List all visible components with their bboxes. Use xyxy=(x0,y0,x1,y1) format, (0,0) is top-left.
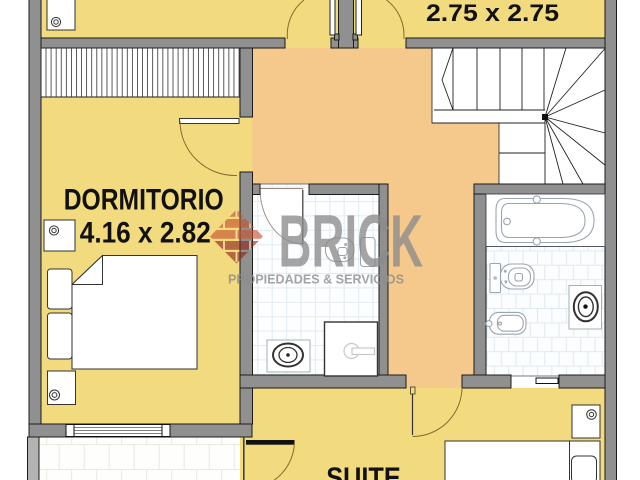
svg-text:SUITE: SUITE xyxy=(326,463,401,480)
svg-text:DORMITORIO: DORMITORIO xyxy=(64,184,224,217)
svg-text:2.75 x 2.75: 2.75 x 2.75 xyxy=(426,0,559,27)
svg-text:PROPIEDADES & SERVICIOS: PROPIEDADES & SERVICIOS xyxy=(228,272,404,287)
svg-text:BRICK: BRICK xyxy=(279,200,424,283)
svg-text:4.16 x 2.82: 4.16 x 2.82 xyxy=(80,217,211,250)
